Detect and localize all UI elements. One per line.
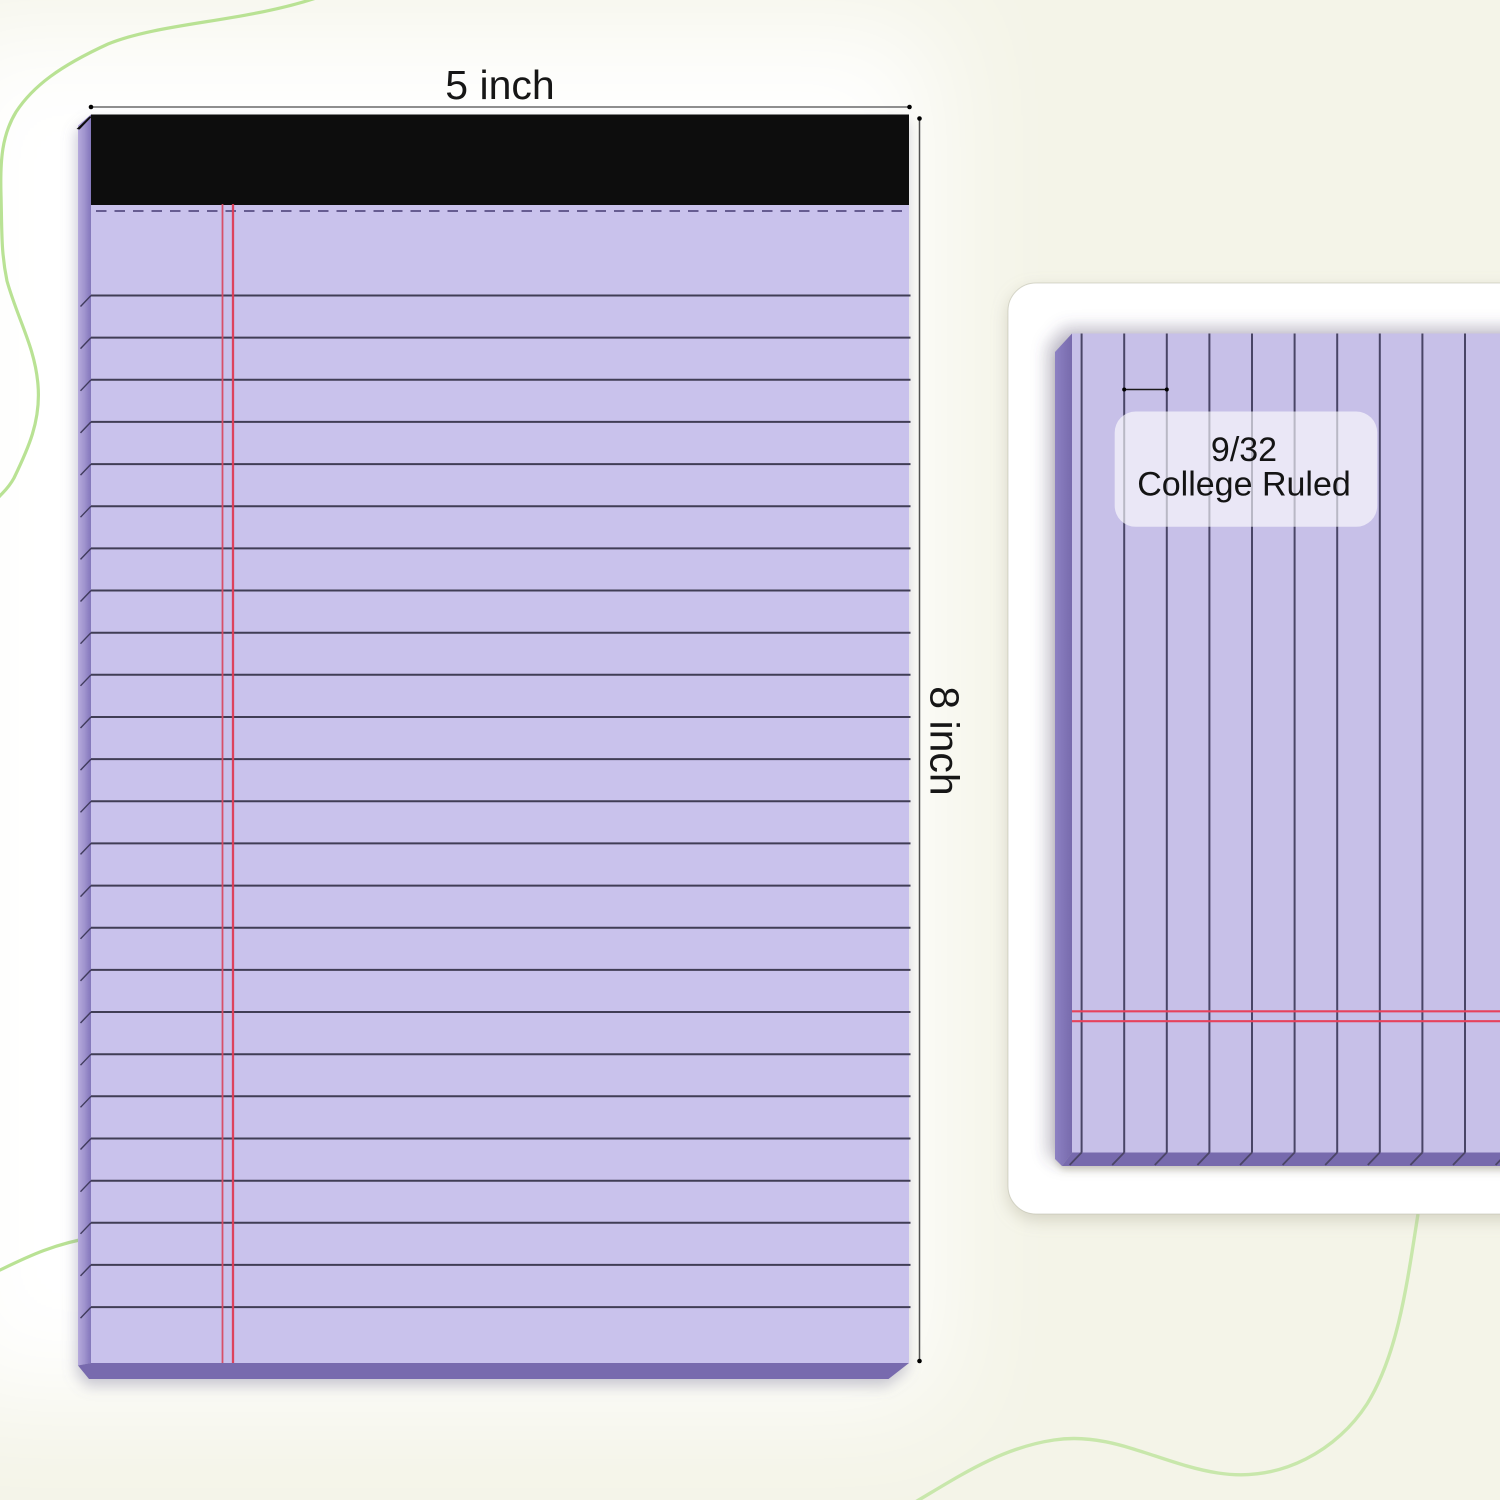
svg-text:8 inch: 8 inch bbox=[922, 686, 968, 795]
svg-text:College Ruled: College Ruled bbox=[1137, 466, 1351, 504]
svg-text:9/32: 9/32 bbox=[1211, 431, 1277, 469]
svg-text:5 inch: 5 inch bbox=[445, 62, 554, 108]
